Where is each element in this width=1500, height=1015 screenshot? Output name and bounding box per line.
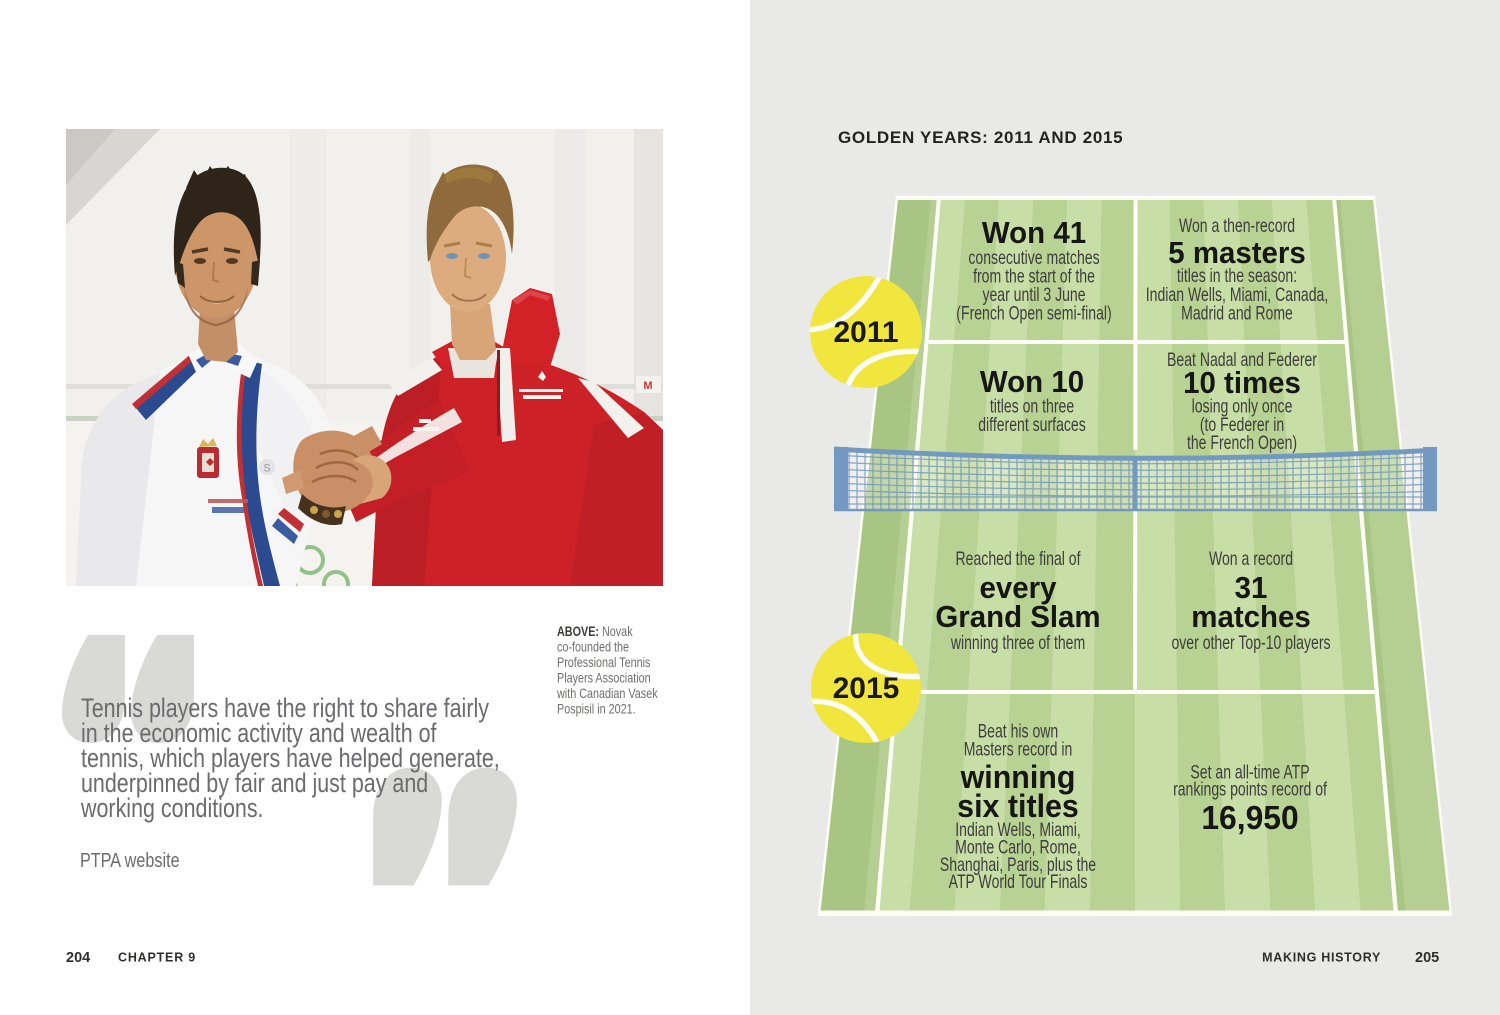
svg-text:M: M [643,380,652,392]
svg-text:Professional Tennis: Professional Tennis [557,655,650,670]
svg-text:working conditions.: working conditions. [80,794,263,824]
svg-text:Won a record: Won a record [1209,548,1293,570]
svg-text:rankings points record of: rankings points record of [1173,778,1327,800]
svg-text:Players Association: Players Association [557,670,651,685]
svg-text:Won 10: Won 10 [980,365,1084,399]
svg-text:over other Top-10 players: over other Top-10 players [1171,632,1330,654]
svg-text:204: 204 [66,950,90,966]
svg-text:(French Open semi-final): (French Open semi-final) [956,302,1111,324]
svg-text:5 masters: 5 masters [1168,236,1305,270]
svg-text:Reached the final of: Reached the final of [956,548,1081,570]
svg-text:winning three of them: winning three of them [950,632,1085,654]
svg-text:ATP World Tour Finals: ATP World Tour Finals [949,871,1088,893]
svg-text:Madrid and Rome: Madrid and Rome [1181,302,1293,324]
svg-text:Won 41: Won 41 [982,216,1086,250]
svg-text:Pospisil in 2021.: Pospisil in 2021. [557,701,636,716]
svg-text:matches: matches [1191,600,1310,634]
svg-text:205: 205 [1415,950,1439,966]
svg-text:16,950: 16,950 [1201,798,1298,836]
svg-text:2011: 2011 [833,316,898,349]
svg-text:2015: 2015 [833,672,900,705]
svg-text:Grand Slam: Grand Slam [935,600,1100,634]
svg-text:CHAPTER 9: CHAPTER 9 [118,951,196,965]
svg-text:10 times: 10 times [1183,366,1301,400]
svg-text:with Canadian Vasek: with Canadian Vasek [556,686,658,701]
svg-text:co-founded the: co-founded the [557,639,629,654]
svg-text:PTPA website: PTPA website [80,849,180,871]
svg-text:S: S [263,463,270,475]
svg-text:ABOVE: Novak: ABOVE: Novak [557,624,633,639]
svg-text:GOLDEN YEARS: 2011 AND 2015: GOLDEN YEARS: 2011 AND 2015 [838,128,1123,147]
svg-text:Masters record in: Masters record in [964,738,1073,760]
svg-text:six titles: six titles [957,788,1079,824]
svg-text:the French Open): the French Open) [1187,432,1297,454]
svg-text:MAKING HISTORY: MAKING HISTORY [1262,951,1381,965]
svg-text:different surfaces: different surfaces [978,414,1086,436]
svg-text:Won a then-record: Won a then-record [1179,215,1295,237]
